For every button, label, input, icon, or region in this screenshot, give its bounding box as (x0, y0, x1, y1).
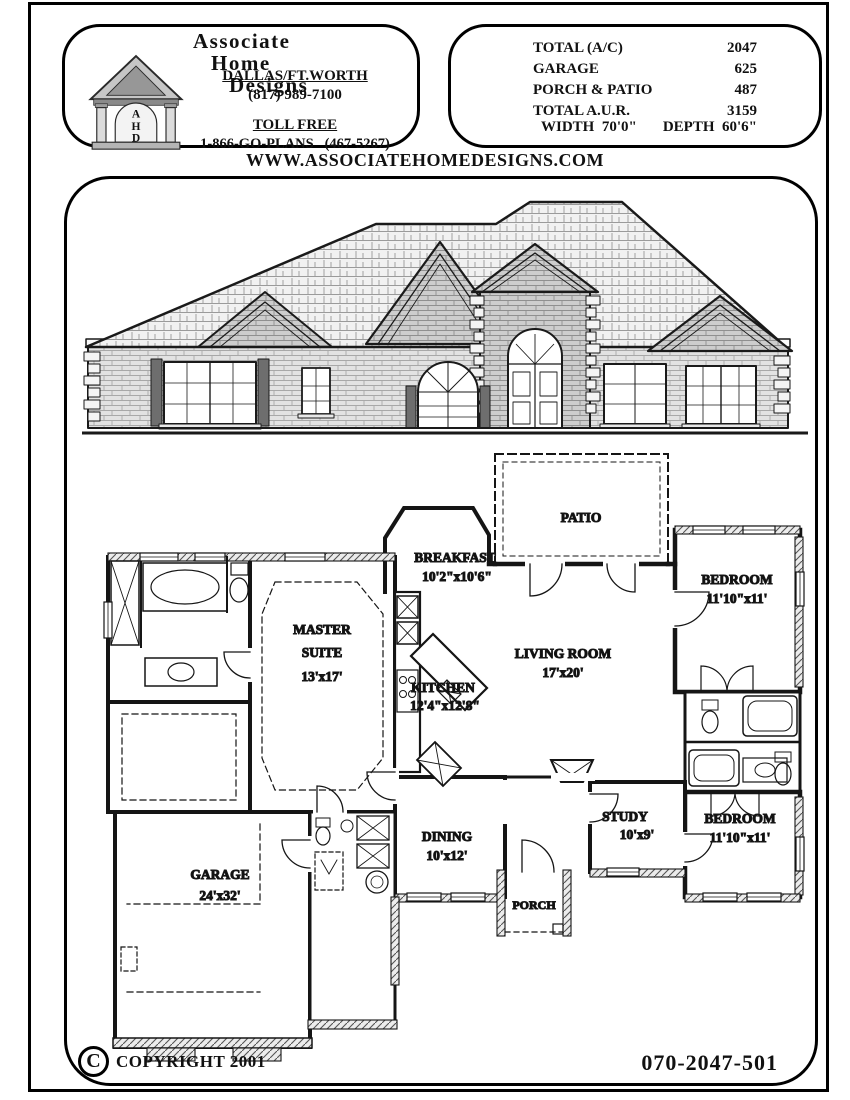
floorplan-walls (108, 508, 800, 1047)
room-label-bedroom-top: BEDROOM (701, 572, 773, 587)
width-depth-line: WIDTH 70'0" DEPTH 60'6" (491, 119, 807, 136)
room-dims-study: 10'x9' (620, 827, 655, 842)
stats-row-total-ac: TOTAL (A/C) 2047 (533, 38, 757, 59)
elevation-small-window (298, 368, 334, 418)
room-dims-breakfast: 10'2"x10'6" (422, 569, 492, 584)
logo-letter-a: A (132, 109, 141, 121)
area-stats-box: TOTAL (A/C) 2047 GARAGE 625 PORCH & PATI… (448, 24, 822, 148)
floor-plan-drawing: PATIO BREAKFAST 10'2"x10'6" BEDROOM 11'1… (95, 442, 810, 1067)
ahd-logo-icon: A H D (77, 53, 195, 153)
stat-label: TOTAL (A/C) (533, 38, 623, 59)
room-label-patio: PATIO (561, 510, 602, 525)
stat-value: 625 (735, 59, 758, 80)
copyright-notice: C COPYRIGHT 2001 (78, 1046, 266, 1077)
floorplan-patio-outline (495, 454, 668, 564)
room-label-living: LIVING ROOM (515, 646, 612, 661)
website-url: WWW.ASSOCIATEHOMEDESIGNS.COM (0, 150, 850, 171)
elevation-ground-line (82, 428, 808, 433)
stats-row-porch-patio: PORCH & PATIO 487 (533, 80, 757, 101)
copyright-symbol: C (78, 1046, 109, 1077)
room-dims-living: 17'x20' (542, 665, 583, 680)
contact-info: DALLAS/FT.WORTH (817) 989-7100 TOLL FREE… (185, 67, 405, 154)
room-label-breakfast: BREAKFAST (414, 550, 496, 565)
room-dims-dining: 10'x12' (426, 848, 467, 863)
stat-label: PORCH & PATIO (533, 80, 652, 101)
stat-value: 487 (735, 80, 758, 101)
logo-letter-h: H (132, 121, 141, 133)
room-label-study: STUDY (602, 809, 648, 824)
room-dims-bedroom-top: 11'10"x11' (707, 591, 768, 606)
stats-row-garage: GARAGE 625 (533, 59, 757, 80)
room-label-master-line1: MASTER (293, 622, 351, 637)
elevation-mid-window (600, 364, 670, 428)
elevation-right-window (682, 366, 760, 428)
room-label-dining: DINING (422, 829, 473, 844)
elevation-entry-door (508, 329, 562, 428)
width-value: WIDTH 70'0" (541, 119, 637, 136)
plan-sheet: A H D Associate Home Designs DALLAS/FT.W… (0, 0, 850, 1100)
room-label-master-line2: SUITE (302, 645, 343, 660)
room-dims-master: 13'x17' (301, 669, 342, 684)
room-label-bedroom-bottom: BEDROOM (704, 811, 776, 826)
room-dims-kitchen: 12'4"x12'8" (410, 698, 480, 713)
room-label-porch: PORCH (512, 898, 556, 912)
room-label-kitchen: KITCHEN (411, 680, 475, 695)
house-elevation-drawing (80, 196, 810, 436)
logo-letter-d: D (132, 132, 140, 144)
company-box: A H D Associate Home Designs DALLAS/FT.W… (62, 24, 420, 148)
contact-phone: (817) 989-7100 (185, 86, 405, 105)
area-stats-table: TOTAL (A/C) 2047 GARAGE 625 PORCH & PATI… (533, 38, 757, 122)
elevation-left-window (151, 359, 269, 429)
contact-region: DALLAS/FT.WORTH (185, 67, 405, 86)
company-name-line1: Associate (193, 30, 308, 52)
copyright-text: COPYRIGHT 2001 (116, 1052, 266, 1072)
room-dims-garage: 24'x32' (199, 888, 240, 903)
depth-value: DEPTH 60'6" (663, 119, 757, 136)
room-label-garage: GARAGE (190, 867, 249, 882)
toll-free-label: TOLL FREE (185, 116, 405, 135)
room-dims-bedroom-bottom: 11'10"x11' (710, 830, 771, 845)
stat-value: 2047 (727, 38, 757, 59)
plan-number: 070-2047-501 (641, 1050, 778, 1076)
stat-label: GARAGE (533, 59, 599, 80)
